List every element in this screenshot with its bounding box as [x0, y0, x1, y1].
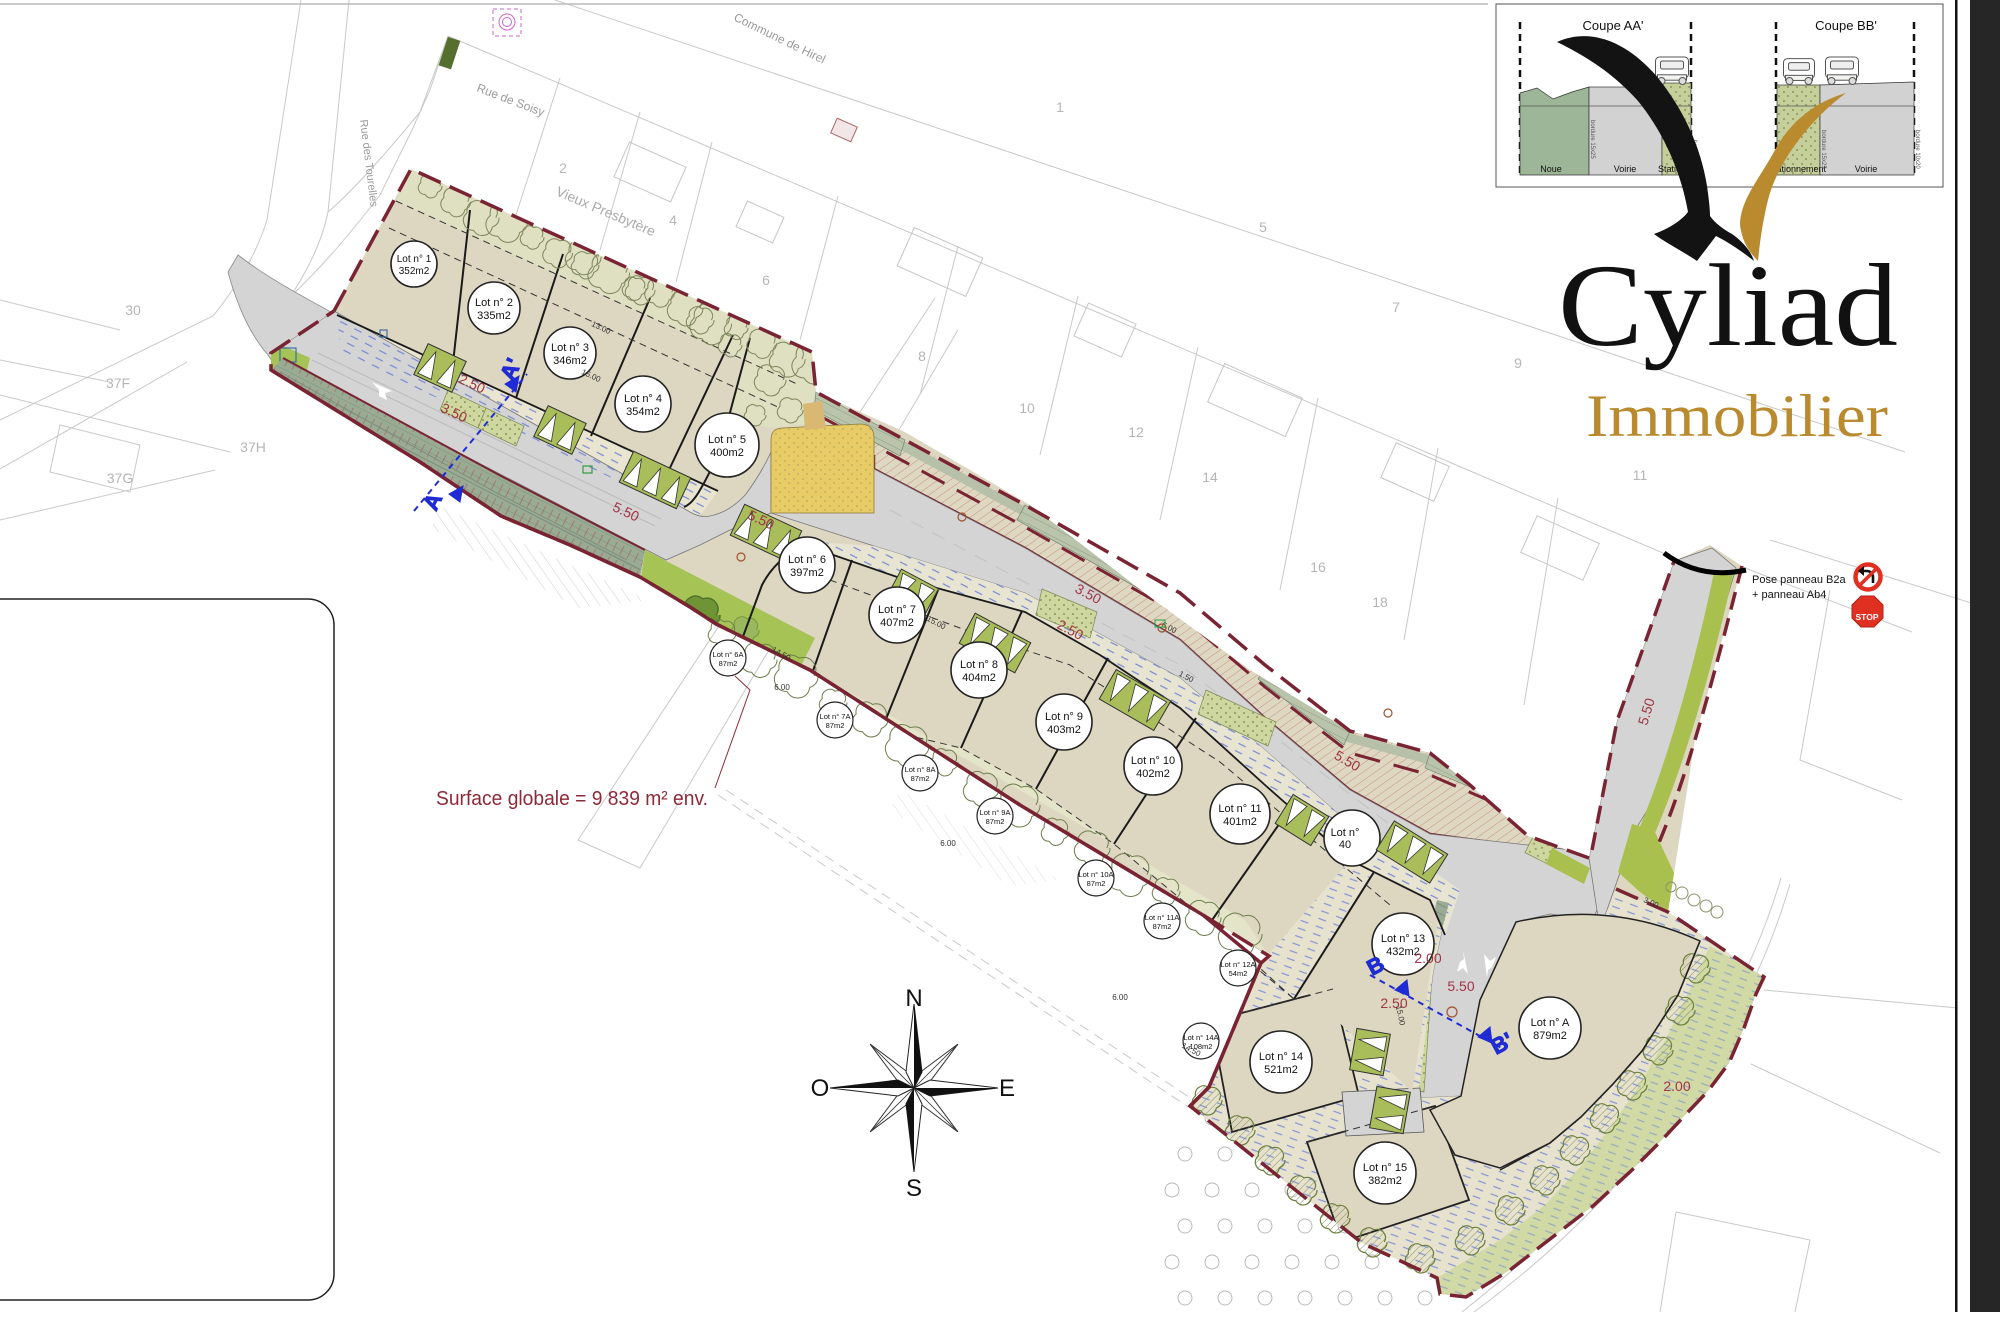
svg-text:Noue: Noue [1540, 164, 1562, 174]
svg-text:352m2: 352m2 [399, 266, 430, 277]
svg-text:397m2: 397m2 [790, 567, 824, 579]
svg-text:Lot n° 12A: Lot n° 12A [1220, 960, 1255, 969]
svg-text:87m2: 87m2 [1153, 922, 1172, 931]
svg-text:Lot n° 10A: Lot n° 10A [1078, 870, 1113, 879]
svg-text:E: E [999, 1075, 1015, 1102]
svg-text:Voirie: Voirie [1855, 164, 1878, 174]
svg-text:54m2: 54m2 [1229, 969, 1248, 978]
svg-text:8: 8 [918, 348, 926, 364]
svg-text:37F: 37F [106, 375, 130, 391]
svg-text:354m2: 354m2 [626, 406, 660, 418]
svg-text:37G: 37G [107, 470, 133, 486]
svg-text:6.00: 6.00 [940, 839, 956, 848]
svg-text:2.00: 2.00 [1663, 1078, 1690, 1094]
svg-text:10: 10 [1019, 400, 1035, 416]
svg-text:Lot n° 15: Lot n° 15 [1363, 1162, 1407, 1174]
svg-text:Lot n° 8: Lot n° 8 [960, 659, 998, 671]
svg-text:6.00: 6.00 [1112, 993, 1128, 1002]
svg-text:521m2: 521m2 [1264, 1064, 1298, 1076]
svg-text:Lot n° 7A: Lot n° 7A [820, 712, 851, 721]
svg-text:87m2: 87m2 [719, 659, 738, 668]
svg-text:Surface globale = 9 839 m² env: Surface globale = 9 839 m² env. [436, 788, 708, 810]
svg-text:346m2: 346m2 [553, 355, 587, 367]
svg-text:bordure 15x25: bordure 15x25 [1820, 130, 1826, 169]
svg-text:Lot n° 7: Lot n° 7 [878, 604, 916, 616]
svg-text:335m2: 335m2 [477, 310, 511, 322]
svg-text:Lot n° 6: Lot n° 6 [788, 554, 826, 566]
svg-text:STOP: STOP [1856, 612, 1879, 622]
svg-text:Lot n° 6A: Lot n° 6A [713, 650, 744, 659]
svg-text:Lot n° 14A: Lot n° 14A [1183, 1033, 1218, 1042]
svg-text:87m2: 87m2 [826, 721, 845, 730]
svg-text:bordure 10x20: bordure 10x20 [1914, 130, 1920, 169]
svg-text:Lot n° 8A: Lot n° 8A [905, 765, 936, 774]
svg-text:Lot n° 10: Lot n° 10 [1131, 755, 1175, 767]
svg-text:+ panneau Ab4: + panneau Ab4 [1752, 589, 1826, 601]
svg-text:403m2: 403m2 [1047, 724, 1081, 736]
svg-text:6: 6 [762, 272, 770, 288]
svg-text:402m2: 402m2 [1136, 768, 1170, 780]
svg-text:Lot n° 13: Lot n° 13 [1381, 933, 1425, 945]
svg-text:400m2: 400m2 [710, 447, 744, 459]
svg-text:5: 5 [1259, 219, 1267, 235]
svg-text:Cyliad: Cyliad [1558, 240, 1898, 371]
svg-text:9: 9 [1514, 355, 1522, 371]
svg-text:Lot n° 9A: Lot n° 9A [980, 808, 1011, 817]
svg-text:87m2: 87m2 [1087, 879, 1106, 888]
svg-text:2.00: 2.00 [1414, 950, 1441, 966]
svg-text:Coupe AA': Coupe AA' [1582, 18, 1643, 33]
svg-text:Immobilier: Immobilier [1586, 383, 1888, 449]
svg-text:Lot n° 5: Lot n° 5 [708, 434, 746, 446]
svg-text:87m2: 87m2 [911, 774, 930, 783]
svg-text:11: 11 [1633, 467, 1648, 483]
svg-text:Pose panneau B2a: Pose panneau B2a [1752, 574, 1846, 586]
svg-text:87m2: 87m2 [986, 817, 1005, 826]
svg-text:Coupe BB': Coupe BB' [1815, 18, 1877, 33]
svg-text:18: 18 [1372, 594, 1388, 610]
svg-text:2: 2 [559, 160, 567, 176]
svg-text:6.00: 6.00 [774, 683, 790, 692]
svg-text:382m2: 382m2 [1368, 1175, 1402, 1187]
svg-text:40: 40 [1339, 839, 1351, 851]
svg-text:5.50: 5.50 [1447, 978, 1474, 994]
svg-text:Lot n° 11: Lot n° 11 [1218, 803, 1261, 815]
svg-text:Lot n° 1: Lot n° 1 [397, 254, 432, 265]
svg-text:bordure 15x25: bordure 15x25 [1589, 120, 1595, 159]
svg-text:30: 30 [125, 302, 141, 318]
svg-text:O: O [811, 1075, 830, 1102]
svg-text:N: N [905, 985, 922, 1012]
svg-text:12: 12 [1128, 424, 1144, 440]
svg-text:Lot n° 4: Lot n° 4 [624, 393, 662, 405]
svg-text:404m2: 404m2 [962, 672, 996, 684]
svg-text:Lot n° 2: Lot n° 2 [475, 297, 513, 309]
svg-text:S: S [906, 1175, 922, 1202]
svg-text:Lot n° 3: Lot n° 3 [551, 342, 589, 354]
svg-text:Lot n° 9: Lot n° 9 [1045, 711, 1083, 723]
svg-text:401m2: 401m2 [1223, 816, 1257, 828]
svg-text:1: 1 [1056, 99, 1064, 115]
svg-text:Voirie: Voirie [1614, 164, 1637, 174]
svg-text:Lot n° A: Lot n° A [1531, 1017, 1570, 1029]
svg-text:7: 7 [1392, 299, 1400, 315]
svg-text:16: 16 [1310, 559, 1326, 575]
svg-text:Lot n° 14: Lot n° 14 [1259, 1051, 1303, 1063]
svg-text:Lot n°: Lot n° [1331, 827, 1360, 839]
svg-text:37H: 37H [240, 439, 266, 455]
svg-text:Lot n° 11A: Lot n° 11A [1145, 913, 1180, 922]
svg-text:879m2: 879m2 [1533, 1030, 1567, 1042]
svg-text:14: 14 [1202, 469, 1218, 485]
svg-text:407m2: 407m2 [880, 617, 914, 629]
svg-text:4: 4 [669, 212, 677, 228]
